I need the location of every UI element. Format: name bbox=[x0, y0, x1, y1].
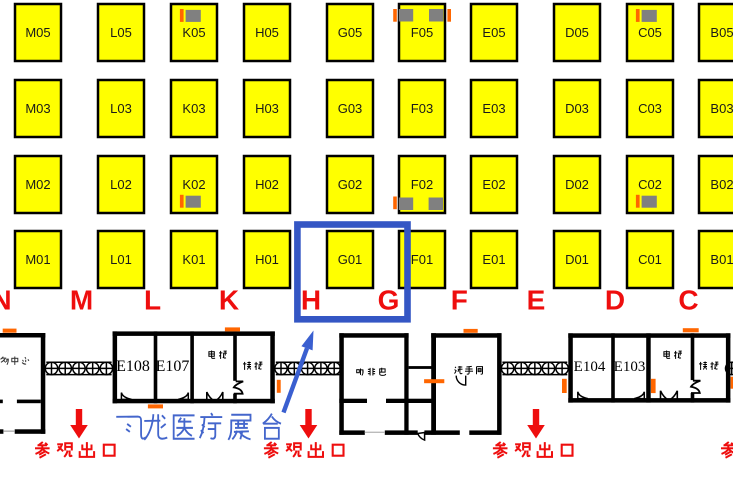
svg-text:H05: H05 bbox=[255, 25, 279, 40]
svg-text:H03: H03 bbox=[255, 101, 279, 116]
svg-text:G03: G03 bbox=[338, 101, 363, 116]
svg-text:F01: F01 bbox=[411, 252, 433, 267]
svg-text:F05: F05 bbox=[411, 25, 433, 40]
svg-text:K02: K02 bbox=[182, 177, 205, 192]
svg-text:E03: E03 bbox=[482, 101, 505, 116]
svg-text:K01: K01 bbox=[182, 252, 205, 267]
svg-text:D: D bbox=[605, 285, 625, 316]
svg-text:C: C bbox=[678, 285, 698, 316]
svg-text:L05: L05 bbox=[110, 25, 132, 40]
svg-text:C02: C02 bbox=[638, 177, 662, 192]
svg-text:D05: D05 bbox=[565, 25, 589, 40]
svg-text:M05: M05 bbox=[25, 25, 50, 40]
svg-text:K05: K05 bbox=[182, 25, 205, 40]
svg-text:K: K bbox=[219, 285, 239, 316]
svg-text:M: M bbox=[70, 285, 93, 316]
svg-text:F03: F03 bbox=[411, 101, 433, 116]
svg-text:K03: K03 bbox=[182, 101, 205, 116]
svg-text:N: N bbox=[0, 285, 12, 316]
svg-text:B02: B02 bbox=[710, 177, 733, 192]
svg-text:B03: B03 bbox=[710, 101, 733, 116]
svg-text:M01: M01 bbox=[25, 252, 50, 267]
svg-text:C03: C03 bbox=[638, 101, 662, 116]
svg-text:H02: H02 bbox=[255, 177, 279, 192]
svg-text:F: F bbox=[451, 285, 468, 316]
svg-text:M03: M03 bbox=[25, 101, 50, 116]
svg-text:G02: G02 bbox=[338, 177, 363, 192]
svg-text:L02: L02 bbox=[110, 177, 132, 192]
svg-text:E: E bbox=[527, 285, 546, 316]
svg-text:F02: F02 bbox=[411, 177, 433, 192]
svg-text:M02: M02 bbox=[25, 177, 50, 192]
svg-text:H01: H01 bbox=[255, 252, 279, 267]
svg-text:B05: B05 bbox=[710, 25, 733, 40]
svg-text:E103: E103 bbox=[614, 359, 646, 375]
svg-text:E104: E104 bbox=[574, 359, 606, 375]
svg-text:G01: G01 bbox=[338, 252, 363, 267]
svg-text:L03: L03 bbox=[110, 101, 132, 116]
svg-text:C05: C05 bbox=[638, 25, 662, 40]
svg-text:E05: E05 bbox=[482, 25, 505, 40]
svg-text:G: G bbox=[378, 285, 400, 316]
svg-text:G05: G05 bbox=[338, 25, 363, 40]
svg-text:C01: C01 bbox=[638, 252, 662, 267]
svg-text:B01: B01 bbox=[710, 252, 733, 267]
svg-text:E02: E02 bbox=[482, 177, 505, 192]
svg-text:H: H bbox=[301, 285, 321, 316]
svg-text:D03: D03 bbox=[565, 101, 589, 116]
svg-text:L01: L01 bbox=[110, 252, 132, 267]
svg-text:D02: D02 bbox=[565, 177, 589, 192]
svg-text:E108: E108 bbox=[116, 358, 150, 375]
svg-text:E01: E01 bbox=[482, 252, 505, 267]
svg-text:E107: E107 bbox=[156, 358, 190, 375]
svg-text:D01: D01 bbox=[565, 252, 589, 267]
svg-text:L: L bbox=[144, 285, 161, 316]
